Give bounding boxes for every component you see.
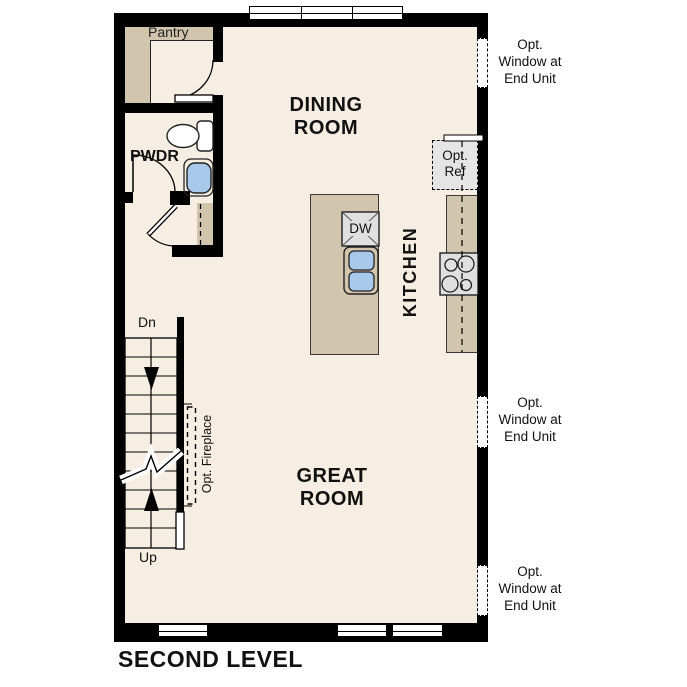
opt-window-label-3: Opt. Window at End Unit (488, 563, 572, 614)
floorplan-second-level: Opt. Ref (0, 0, 687, 687)
page-title: SECOND LEVEL (118, 646, 303, 673)
pwdr-sink-icon (187, 163, 211, 193)
opt-window-label-line3: End Unit (488, 597, 572, 614)
closet-door-arc (148, 234, 172, 246)
bottom-window-2 (337, 624, 387, 637)
opt-window-label-line2: Window at (488, 580, 572, 597)
up-arrow-icon (144, 488, 159, 511)
toilet-bowl-icon (167, 125, 199, 148)
opt-window-label-1: Opt. Window at End Unit (488, 36, 572, 87)
dining-room-label: DINING ROOM (266, 94, 386, 140)
opt-window-label-line2: Window at (488, 411, 572, 428)
fireplace-label: Opt. Fireplace (200, 404, 214, 504)
window-divider (352, 7, 353, 19)
optional-window-2 (477, 396, 488, 448)
opt-window-label-line2: Window at (488, 53, 572, 70)
top-window (249, 6, 403, 20)
down-arrow-icon (144, 367, 159, 390)
dining-room-line2: ROOM (266, 117, 386, 140)
window-midline (159, 631, 207, 632)
window-midline (250, 13, 402, 14)
stairs-down-label: Dn (138, 314, 156, 330)
window-divider (301, 7, 302, 19)
opt-window-label-line3: End Unit (488, 70, 572, 87)
bottom-window-1 (158, 624, 208, 637)
island-sink-basin-top (349, 251, 374, 270)
counter-edge-above-ref (444, 135, 483, 141)
closet-door-leaf (148, 206, 176, 235)
kitchen-label: KITCHEN (400, 216, 420, 328)
stairs-up-label: Up (139, 549, 157, 565)
optional-window-3 (477, 565, 488, 616)
pwdr-label: PWDR (130, 148, 179, 166)
bottom-window-3 (392, 624, 443, 637)
dining-room-line1: DINING (266, 94, 386, 117)
optional-fireplace-outline (188, 407, 196, 504)
dishwasher-label: DW (345, 221, 376, 236)
opt-window-label-line3: End Unit (488, 428, 572, 445)
window-midline (338, 631, 386, 632)
pantry-door-arc (175, 60, 213, 98)
window-midline (393, 631, 442, 632)
great-room-line2: ROOM (272, 488, 392, 511)
opt-window-label-line1: Opt. (488, 394, 572, 411)
stair-railing (176, 512, 184, 549)
island-sink-basin-bottom (349, 272, 374, 291)
great-room-line1: GREAT (272, 465, 392, 488)
pantry-door-leaf (175, 95, 213, 102)
opt-window-label-line1: Opt. (488, 36, 572, 53)
optional-window-1 (477, 38, 488, 88)
opt-window-label-line1: Opt. (488, 563, 572, 580)
great-room-label: GREAT ROOM (272, 465, 392, 511)
pantry-label: Pantry (148, 24, 188, 40)
opt-window-label-2: Opt. Window at End Unit (488, 394, 572, 445)
